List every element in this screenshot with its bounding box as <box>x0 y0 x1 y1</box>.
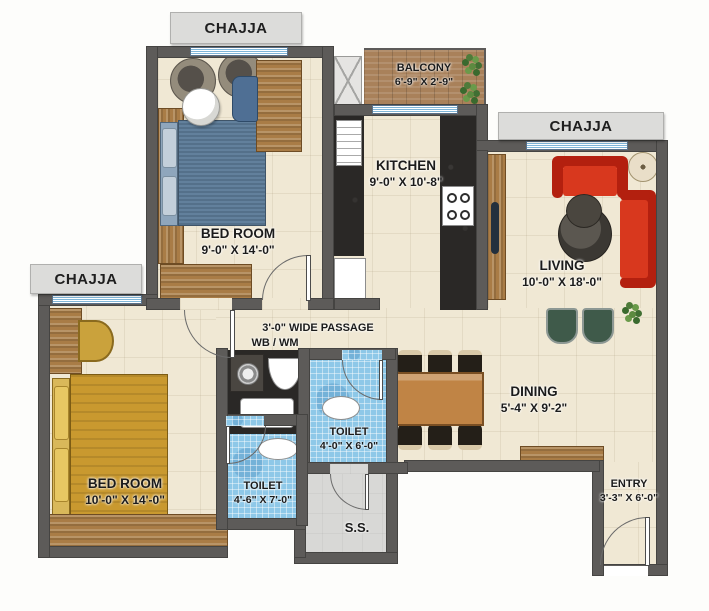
pillow-icon <box>162 128 177 168</box>
sofa-seat <box>620 200 648 278</box>
wall <box>404 460 600 472</box>
room-name: BALCONY <box>374 62 474 76</box>
room-dims: 9'-0" X 14'-0" <box>168 243 308 258</box>
accent-chair-icon <box>546 308 578 344</box>
chajja-label-top: CHAJJA <box>170 12 302 44</box>
wall <box>334 298 380 310</box>
room-dims: 4'-0" X 6'-0" <box>312 440 386 453</box>
wall <box>38 294 50 558</box>
door-leaf <box>230 310 235 358</box>
chajja-label-left: CHAJJA <box>30 264 142 294</box>
room-dims: 4'-6" X 7'-0" <box>228 494 298 507</box>
dining-chair-icon <box>398 424 422 450</box>
toilet-lower-label: TOILET 4'-6" X 7'-0" <box>228 480 298 507</box>
door-leaf <box>645 517 650 566</box>
wall <box>476 150 488 310</box>
bed-icon <box>178 120 266 226</box>
kitchen-label: KITCHEN 9'-0" X 10'-8" <box>348 158 464 190</box>
duct-shaft <box>334 56 362 106</box>
door-opening <box>180 298 232 310</box>
chajja-text: CHAJJA <box>204 20 267 37</box>
fridge-icon <box>334 258 366 300</box>
burner-icon <box>460 193 470 203</box>
wardrobe-icon <box>48 514 228 548</box>
door-opening <box>330 464 368 474</box>
bedroom-chair-icon <box>78 320 114 362</box>
passage-text: 3'-0" WIDE PASSAGE <box>262 322 374 334</box>
room-name: LIVING <box>502 258 622 275</box>
sofa-two-seat-icon <box>552 156 628 198</box>
room-dims: 3'-3" X 6'-0" <box>596 492 662 505</box>
pillow-icon <box>54 386 69 440</box>
wall <box>656 140 668 576</box>
sofa-three-seat-icon <box>618 190 656 288</box>
floor-plan: CHAJJA CHAJJA CHAJJA BALCONY 6'-9" X 2'-… <box>0 0 709 611</box>
wall <box>294 552 398 564</box>
room-dims: 9'-0" X 10'-8" <box>348 175 464 190</box>
door-leaf <box>379 360 383 400</box>
passage-label: 3'-0" WIDE PASSAGE <box>240 322 396 336</box>
sofa-seat <box>563 166 617 196</box>
ss-label: S.S. <box>330 520 384 536</box>
door-leaf <box>365 474 369 510</box>
burner-icon <box>460 210 470 220</box>
washing-machine-icon <box>230 354 264 392</box>
room-name: BED ROOM <box>168 226 308 243</box>
dining-chair-icon <box>458 424 482 450</box>
wc-icon <box>258 438 298 460</box>
door-opening <box>226 416 264 426</box>
burner-icon <box>447 193 457 203</box>
room-name: BED ROOM <box>55 476 195 493</box>
pillow-icon <box>162 176 177 216</box>
wall <box>216 518 306 530</box>
room-dims: 6'-9" X 2'-9" <box>374 76 474 89</box>
wall <box>146 46 158 310</box>
sofa-arm <box>620 277 650 288</box>
room-name: KITCHEN <box>348 158 464 175</box>
toilet-upper-label: TOILET 4'-0" X 6'-0" <box>312 426 386 453</box>
living-label: LIVING 10'-0" X 18'-0" <box>502 258 622 290</box>
wall <box>386 348 398 560</box>
room-dims: 5'-4" X 9'-2" <box>486 401 582 416</box>
wb-wm-text: WB / WM <box>251 337 298 349</box>
door-leaf <box>306 255 311 301</box>
lamp-icon <box>628 152 658 182</box>
accent-chair-icon <box>582 308 614 344</box>
room-name: S.S. <box>345 520 370 535</box>
burner-icon <box>447 210 457 220</box>
room-name: DINING <box>486 384 582 401</box>
round-table-icon <box>182 88 220 126</box>
door-opening <box>604 566 648 576</box>
dining-label: DINING 5'-4" X 9'-2" <box>486 384 582 416</box>
wb-wm-label: WB / WM <box>240 337 310 351</box>
room-dims: 10'-0" X 18'-0" <box>502 275 622 290</box>
door-opening <box>342 350 382 360</box>
window-icon <box>190 47 288 56</box>
dining-table-icon <box>392 372 484 426</box>
room-name: TOILET <box>228 480 298 494</box>
window-icon <box>526 141 628 150</box>
wall <box>322 46 334 308</box>
desk-icon <box>256 60 302 152</box>
chajja-text: CHAJJA <box>549 118 612 135</box>
wall <box>296 414 308 526</box>
bedroom-bottom-label: BED ROOM 10'-0" X 14'-0" <box>55 476 195 508</box>
door-handle-icon <box>491 202 499 254</box>
wall <box>38 546 228 558</box>
bedroom-top-label: BED ROOM 9'-0" X 14'-0" <box>168 226 308 258</box>
window-icon <box>372 105 458 114</box>
plant-icon <box>626 302 633 309</box>
room-name: TOILET <box>312 426 386 440</box>
dresser-icon <box>48 308 82 374</box>
entry-label: ENTRY 3'-3" X 6'-0" <box>596 478 662 505</box>
dining-chair-icon <box>428 424 452 450</box>
chajja-text: CHAJJA <box>54 271 117 288</box>
sofa-arm <box>552 162 563 198</box>
window-icon <box>52 295 142 304</box>
balcony-label: BALCONY 6'-9" X 2'-9" <box>374 62 474 89</box>
center-table-icon <box>566 194 602 228</box>
washer-drum <box>237 363 259 385</box>
plant-icon <box>466 54 473 61</box>
desk-chair-icon <box>232 76 258 122</box>
door-leaf <box>226 426 230 464</box>
wc-icon <box>322 396 360 420</box>
room-dims: 10'-0" X 14'-0" <box>55 493 195 508</box>
chajja-label-right: CHAJJA <box>498 112 664 140</box>
room-name: ENTRY <box>596 478 662 492</box>
stove-icon <box>442 186 474 226</box>
